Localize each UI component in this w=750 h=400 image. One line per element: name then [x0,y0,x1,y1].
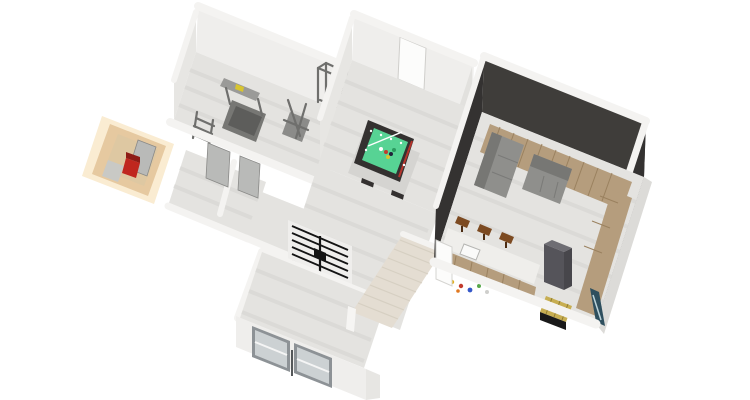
floorplan-render [0,0,750,400]
closet-door [238,156,260,198]
bar-cabinet [544,240,572,290]
entrance-side-wall [366,369,380,400]
sauna-room [82,116,174,204]
floorplan-canvas [0,0,750,400]
